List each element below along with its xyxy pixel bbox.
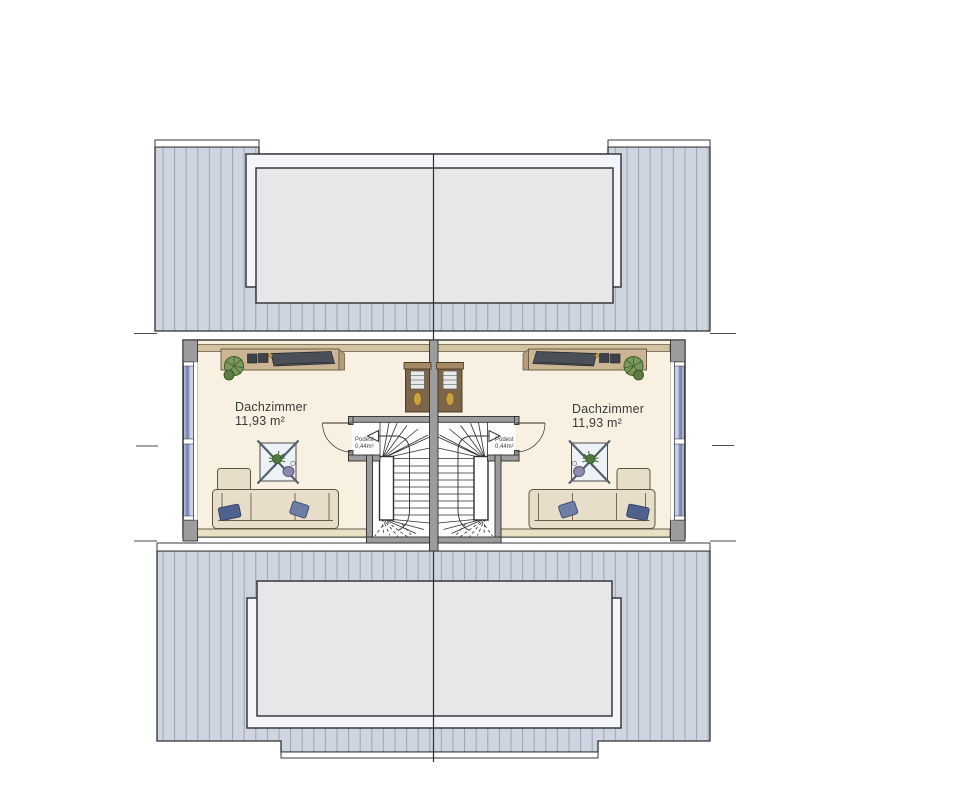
wall-corner: [183, 520, 198, 541]
knee-wall-bottom-right: [501, 529, 670, 537]
landing-label-right: Podest 0,44m²: [495, 437, 514, 450]
mullion: [184, 516, 194, 520]
wall-corner: [671, 520, 686, 541]
mullion: [675, 362, 685, 366]
landing-label-left: Podest 0,44m²: [355, 437, 374, 450]
mullion: [184, 439, 194, 444]
landing-name: Podest: [495, 437, 514, 444]
room-area: 11,93 m²: [235, 415, 307, 429]
room-label-right: Dachzimmer 11,93 m²: [572, 403, 644, 430]
wall-corner: [183, 340, 198, 362]
window-sill: [194, 362, 198, 520]
landing-name: Podest: [355, 437, 374, 444]
mullion: [675, 439, 685, 444]
landing-area: 0,44m²: [495, 444, 514, 451]
room-area: 11,93 m²: [572, 417, 644, 431]
ridge-board-left: [155, 140, 259, 147]
window-right: [671, 362, 685, 520]
room-name: Dachzimmer: [572, 403, 644, 417]
floor-plan-canvas: [0, 0, 956, 800]
mullion: [184, 362, 194, 366]
bottom-dormer-glass: [257, 581, 612, 716]
wall-corner: [671, 340, 686, 362]
party-wall: [430, 340, 439, 551]
top-dormer-glass: [256, 168, 613, 303]
window-left: [184, 362, 198, 520]
landing-area: 0,44m²: [355, 444, 374, 451]
room-name: Dachzimmer: [235, 401, 307, 415]
room-label-left: Dachzimmer 11,93 m²: [235, 401, 307, 428]
mullion: [675, 516, 685, 520]
attic-floor-plan: Dachzimmer 11,93 m² Dachzimmer 11,93 m² …: [0, 0, 956, 800]
eaves-board-bottom: [281, 752, 598, 758]
roof-top: [155, 140, 710, 331]
ridge-board-right: [608, 140, 710, 147]
window-sill: [671, 362, 675, 520]
knee-wall-bottom-left: [197, 529, 367, 537]
